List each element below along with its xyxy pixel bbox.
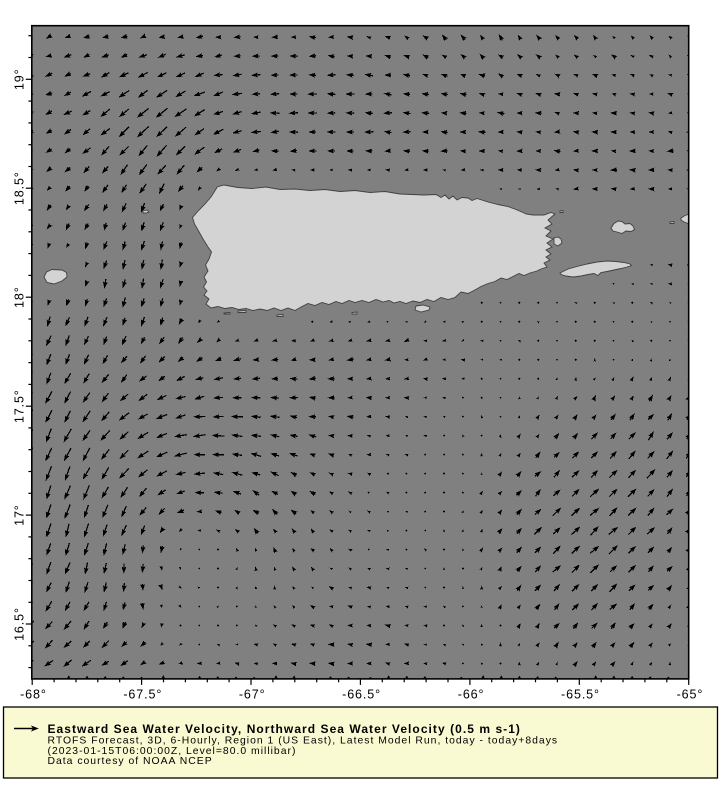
svg-text:Eastward Sea Water Velocity, N: Eastward Sea Water Velocity, Northward S…: [48, 722, 521, 736]
svg-text:-67.5°: -67.5°: [123, 688, 162, 702]
svg-text:-68°: -68°: [20, 688, 47, 702]
svg-text:Data courtesy of NOAA NCEP: Data courtesy of NOAA NCEP: [48, 756, 213, 767]
svg-text:19°: 19°: [13, 68, 27, 90]
svg-text:17.5°: 17.5°: [13, 389, 27, 423]
svg-text:18.5°: 18.5°: [13, 171, 27, 205]
svg-text:-67°: -67°: [239, 688, 266, 702]
svg-text:-65.5°: -65.5°: [561, 688, 600, 702]
svg-text:16.5°: 16.5°: [13, 607, 27, 641]
svg-text:-66°: -66°: [458, 688, 485, 702]
svg-text:-65°: -65°: [677, 688, 704, 702]
svg-text:17°: 17°: [13, 504, 27, 526]
svg-text:18°: 18°: [13, 286, 27, 308]
svg-text:-66.5°: -66.5°: [342, 688, 381, 702]
